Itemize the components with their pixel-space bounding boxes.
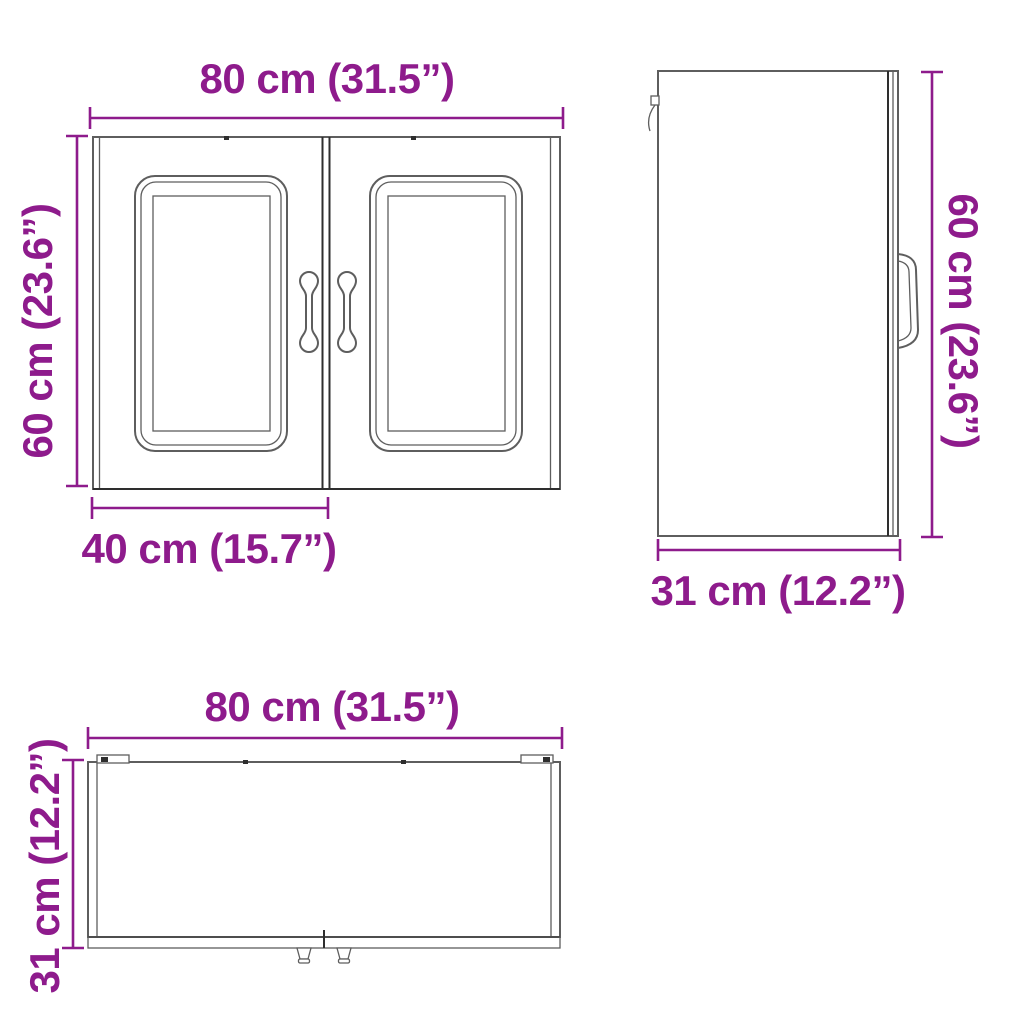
front-left-door-frame-outer bbox=[135, 176, 287, 451]
top-wall-hinge-left bbox=[97, 755, 129, 763]
side-depth-label: 31 cm (12.2”) bbox=[651, 570, 906, 612]
top-back-edge-mark-right bbox=[401, 760, 406, 764]
front-right-door-frame bbox=[370, 176, 522, 451]
top-cabinet-outline bbox=[88, 762, 560, 937]
front-right-door-handle bbox=[338, 272, 356, 352]
front-height-label: 60 cm (23.6”) bbox=[17, 204, 59, 459]
side-hinge-hook bbox=[649, 105, 655, 131]
top-knob-left-stem bbox=[297, 948, 311, 959]
front-width-dimension-line bbox=[90, 107, 563, 129]
line-art-canvas bbox=[0, 0, 1024, 1024]
side-hinge-block bbox=[651, 96, 659, 105]
front-right-door-glass bbox=[388, 196, 505, 431]
side-depth-dimension-line bbox=[658, 539, 900, 561]
top-knob-left bbox=[297, 948, 311, 963]
front-top-edge-hinge-mark-right bbox=[411, 136, 416, 140]
top-width-dimension-line bbox=[88, 727, 562, 749]
top-hinge-nub-left bbox=[101, 757, 108, 762]
front-height-dimension-line bbox=[66, 136, 88, 486]
side-cabinet-outline bbox=[658, 71, 898, 536]
dimension-lines bbox=[62, 72, 943, 948]
cabinet-dimension-diagram: 80 cm (31.5”) 60 cm (23.6”) 40 cm (15.7”… bbox=[0, 0, 1024, 1024]
front-left-door-frame bbox=[135, 176, 287, 451]
top-view bbox=[88, 755, 560, 963]
side-height-label: 60 cm (23.6”) bbox=[942, 194, 984, 449]
top-knob-right-cap bbox=[339, 959, 350, 963]
front-left-door-glass bbox=[153, 196, 270, 431]
top-width-label: 80 cm (31.5”) bbox=[205, 686, 460, 728]
top-wall-hinge-right bbox=[521, 755, 553, 763]
front-right-door-frame-outer bbox=[370, 176, 522, 451]
top-knob-right-stem bbox=[337, 948, 351, 959]
top-knob-right bbox=[337, 948, 351, 963]
front-left-door-frame-middle bbox=[141, 182, 281, 445]
front-cabinet-outline bbox=[93, 137, 560, 489]
side-handle-inner-curve bbox=[898, 261, 911, 341]
top-hinge-nub-right bbox=[543, 757, 550, 762]
side-door-handle bbox=[898, 254, 918, 348]
front-view bbox=[93, 136, 560, 489]
front-right-door-frame-middle bbox=[376, 182, 516, 445]
front-width-label: 80 cm (31.5”) bbox=[200, 58, 455, 100]
side-view bbox=[649, 71, 918, 536]
top-depth-label: 31 cm (12.2”) bbox=[24, 739, 66, 994]
top-back-edge-mark-left bbox=[243, 760, 248, 764]
front-door-width-label: 40 cm (15.7”) bbox=[82, 528, 337, 570]
front-top-edge-hinge-mark-left bbox=[224, 136, 229, 140]
front-door-width-dimension-line bbox=[92, 497, 328, 519]
front-left-door-handle bbox=[300, 272, 318, 352]
top-knob-left-cap bbox=[299, 959, 310, 963]
